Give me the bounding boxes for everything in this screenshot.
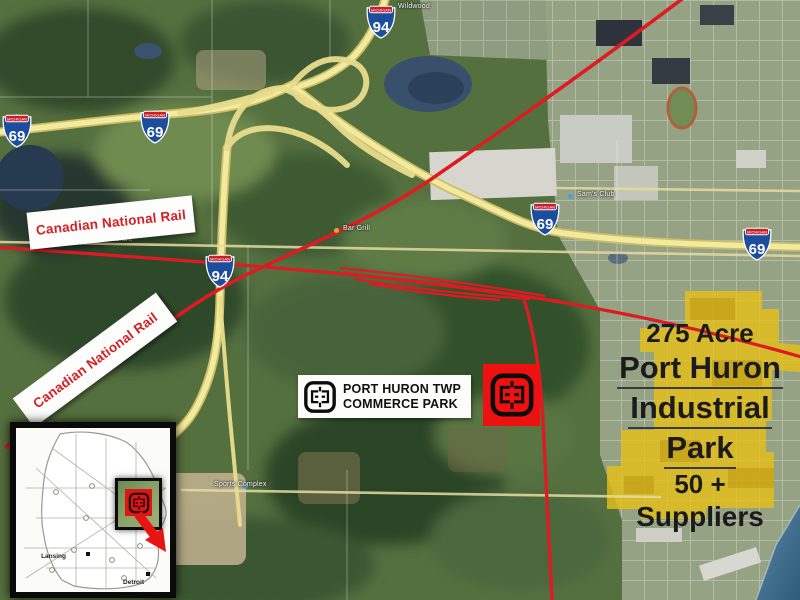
inset-site-thumbnail: [115, 478, 162, 530]
monogram-logo-icon: [489, 371, 535, 419]
interstate-shield-icon: MICHIGAN 94: [205, 252, 235, 289]
industrial-park-suppliers-count: 50 +: [597, 469, 800, 500]
svg-text:MICHIGAN: MICHIGAN: [747, 229, 767, 234]
industrial-park-name-line2: Industrial: [628, 389, 772, 429]
poi-label-wildwood: Wildwood: [398, 3, 430, 10]
svg-text:69: 69: [9, 128, 26, 145]
commerce-park-site-marker: [483, 364, 540, 426]
commerce-park-label: PORT HURON TWP COMMERCE PARK: [298, 375, 471, 418]
interstate-shield-icon: MICHIGAN 94: [366, 3, 396, 40]
monogram-logo-icon: [128, 492, 150, 514]
svg-text:MICHIGAN: MICHIGAN: [535, 204, 555, 209]
commerce-park-name-line2: COMMERCE PARK: [343, 397, 461, 412]
industrial-park-acreage: 275 Acre: [597, 318, 800, 349]
interstate-shield-icon: MICHIGAN 69: [530, 200, 560, 237]
poi-dot-icon: [568, 194, 573, 199]
monogram-logo-icon: [303, 380, 337, 414]
i69-shield-interchange: MICHIGAN 69: [140, 108, 170, 145]
i69-shield-mid-east: MICHIGAN 69: [530, 200, 560, 237]
svg-text:69: 69: [749, 241, 766, 258]
svg-text:94: 94: [373, 19, 390, 36]
poi-dot-icon: [334, 228, 339, 233]
svg-text:69: 69: [537, 216, 554, 233]
poi-label-bar-grill: Bar Grill: [343, 225, 370, 232]
industrial-park-name-line3: Park: [664, 429, 735, 469]
interstate-shield-icon: MICHIGAN 69: [742, 225, 772, 262]
inset-locator-map: Lansing Detroit: [10, 422, 176, 598]
i94-shield-north: MICHIGAN 94: [366, 3, 396, 40]
svg-text:MICHIGAN: MICHIGAN: [7, 116, 27, 121]
industrial-park-callout: 275 Acre Port Huron Industrial Park 50 +…: [597, 318, 800, 533]
svg-text:MICHIGAN: MICHIGAN: [371, 7, 391, 12]
inset-city-label: Detroit: [123, 579, 145, 586]
poi-label-sports-complex: Sports Complex: [214, 481, 267, 488]
i69-shield-east: MICHIGAN 69: [742, 225, 772, 262]
svg-text:MICHIGAN: MICHIGAN: [145, 112, 165, 117]
industrial-park-name-line1: Port Huron: [617, 349, 783, 389]
industrial-park-suppliers-word: Suppliers: [597, 500, 800, 533]
svg-text:MICHIGAN: MICHIGAN: [210, 256, 230, 261]
inset-city-label: Lansing: [41, 553, 66, 560]
svg-text:69: 69: [147, 124, 164, 141]
satellite-map-view: Wildwood Sam's Club Crossroads Restauran…: [0, 0, 800, 600]
i69-shield-west: MICHIGAN 69: [2, 112, 32, 149]
rail-banner-label: Canadian National Rail: [35, 207, 186, 238]
poi-label-sams-club: Sam's Club: [577, 191, 615, 198]
i94-shield-center: MICHIGAN 94: [205, 252, 235, 289]
interstate-shield-icon: MICHIGAN 69: [2, 112, 32, 149]
inset-site-marker: [125, 489, 152, 516]
interstate-shield-icon: MICHIGAN 69: [140, 108, 170, 145]
svg-text:94: 94: [212, 268, 229, 285]
commerce-park-name-line1: PORT HURON TWP: [343, 382, 461, 397]
